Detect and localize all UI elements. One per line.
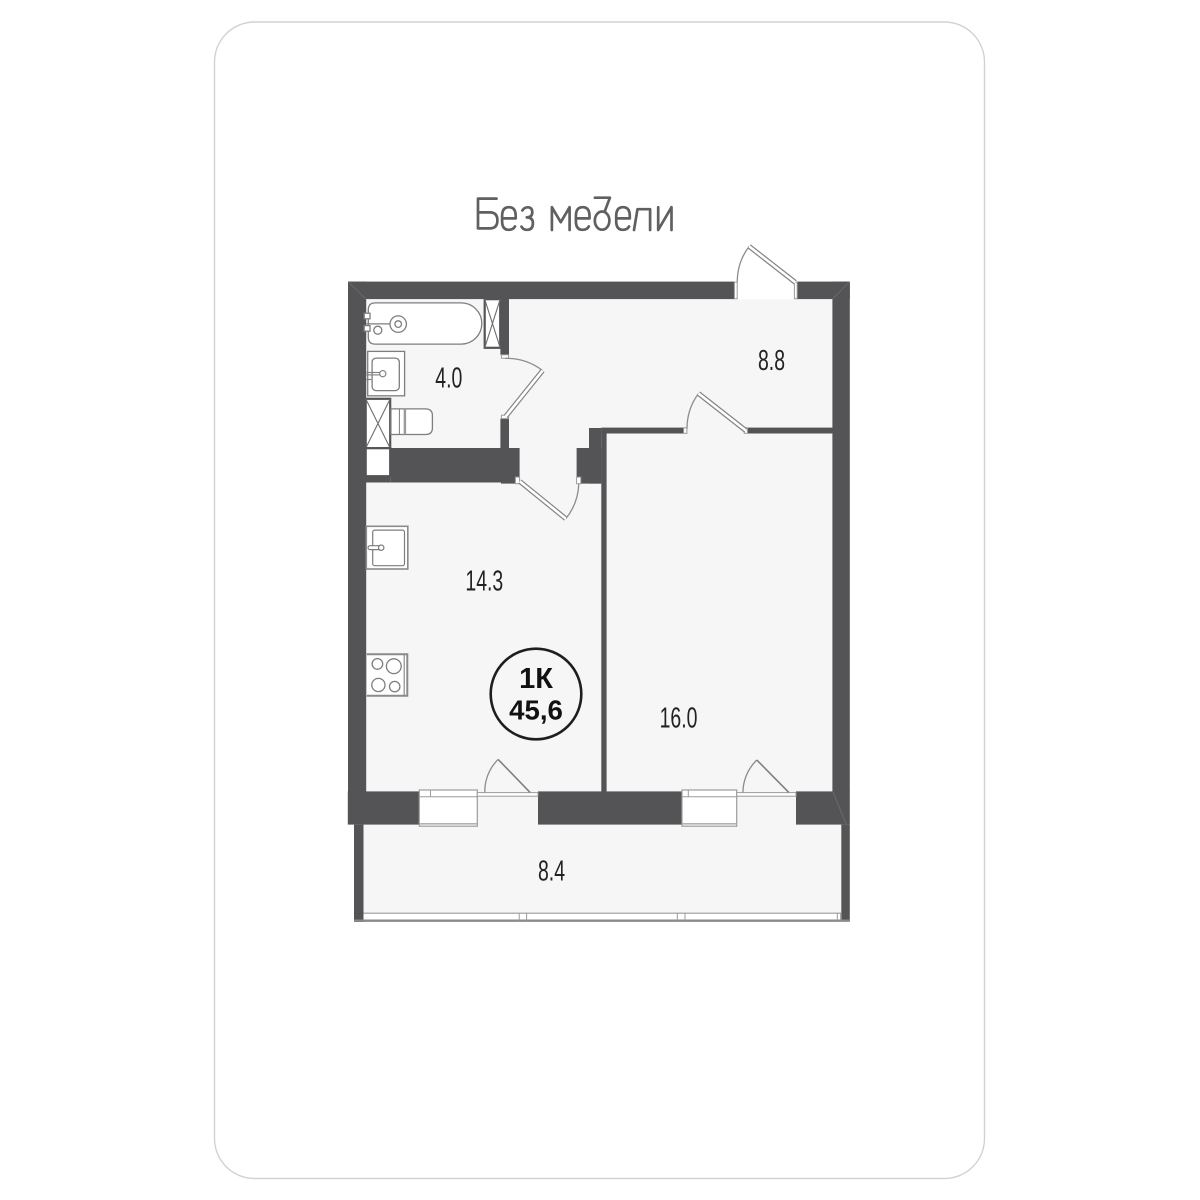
svg-text:8.8: 8.8 (758, 346, 785, 378)
svg-text:16.0: 16.0 (660, 703, 698, 735)
svg-text:1К: 1К (519, 663, 553, 695)
svg-text:4.0: 4.0 (435, 363, 462, 395)
svg-text:14.3: 14.3 (465, 566, 503, 598)
svg-text:45,6: 45,6 (509, 695, 563, 726)
svg-text:8.4: 8.4 (538, 856, 565, 888)
